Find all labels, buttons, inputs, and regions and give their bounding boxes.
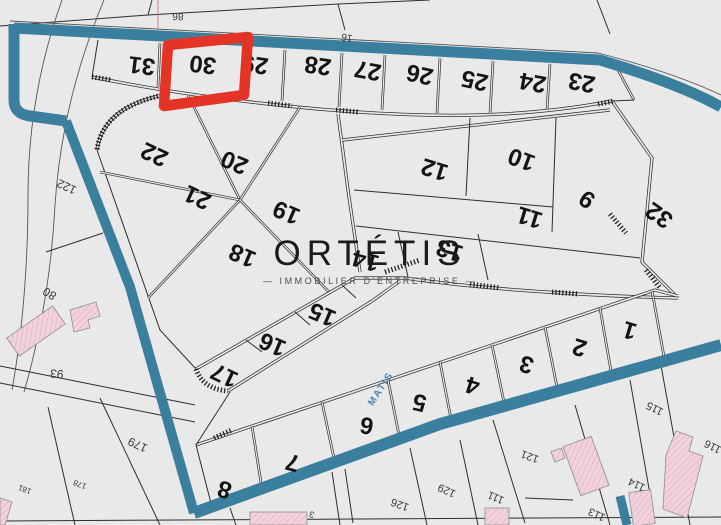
peripheral-label-114-14: 114 (626, 475, 647, 494)
peripheral-label-115-15: 115 (644, 399, 665, 418)
peripheral-label-93-4: 93 (49, 366, 64, 381)
peripheral-label-126-9: 126 (389, 495, 410, 513)
cluster-spokes (100, 95, 330, 298)
parcel-label-23[interactable]: 23 (566, 67, 597, 98)
peripheral-label-122-2: 122 (54, 176, 78, 197)
parcel-label-15[interactable]: 15 (305, 296, 340, 331)
parcel-label-27[interactable]: 27 (352, 55, 383, 86)
parcel-label-10[interactable]: 10 (504, 142, 538, 177)
peripheral-label-16-1: 16 (340, 30, 353, 43)
parcel-label-28[interactable]: 28 (303, 50, 333, 80)
buildings (0, 302, 703, 525)
cadastral-map: 3130292827262524232221201918121011932131… (0, 0, 721, 525)
peripheral-label-179-5: 179 (125, 434, 149, 455)
peripheral-label-178-6: 178 (72, 478, 88, 491)
parcel-label-3[interactable]: 3 (516, 349, 537, 379)
parcel-label-22[interactable]: 22 (137, 136, 173, 172)
building (485, 508, 509, 525)
peripheral-label-80-3: 80 (40, 284, 59, 303)
parcel-label-5[interactable]: 5 (410, 387, 429, 416)
peripheral-label-3-8: 3 (308, 509, 315, 520)
parcel-label-25[interactable]: 25 (459, 64, 491, 96)
parcel-label-9[interactable]: 9 (574, 184, 600, 214)
parcel-label-24[interactable]: 24 (517, 66, 549, 97)
peripheral-label-111-11: 111 (486, 488, 506, 506)
parcel-label-18[interactable]: 18 (225, 237, 260, 272)
peripheral-label-129-10: 129 (436, 481, 458, 500)
parcel-label-14[interactable]: 14 (349, 243, 382, 276)
parcel-label-19[interactable]: 19 (269, 194, 304, 229)
parcel-label-21[interactable]: 21 (180, 179, 216, 215)
parcel-label-31[interactable]: 31 (127, 50, 157, 80)
parcel-label-30[interactable]: 30 (188, 49, 218, 79)
map-canvas: 3130292827262524232221201918121011932131… (0, 0, 721, 525)
parcel-label-4[interactable]: 4 (462, 370, 483, 400)
parcel-label-26[interactable]: 26 (404, 58, 436, 90)
peripheral-label-86-0: 86 (172, 10, 184, 22)
parcel-label-20[interactable]: 20 (217, 144, 252, 179)
peripheral-label-121-12: 121 (519, 447, 540, 465)
building (629, 490, 656, 525)
parcel-label-2[interactable]: 2 (569, 332, 590, 362)
building (663, 431, 703, 518)
parcel-label-12[interactable]: 12 (418, 152, 451, 186)
building (551, 448, 565, 462)
parcel-label-1[interactable]: 1 (619, 315, 640, 345)
parcel-label-6[interactable]: 6 (358, 411, 376, 440)
building (7, 306, 65, 356)
building (70, 302, 100, 332)
building (563, 436, 609, 495)
parcel-label-17[interactable]: 17 (207, 357, 243, 393)
peripheral-label-181-7: 181 (17, 483, 33, 496)
building (250, 512, 307, 525)
peripheral-label-113-13: 113 (586, 505, 607, 523)
peripheral-label-116-16: 116 (702, 437, 721, 456)
